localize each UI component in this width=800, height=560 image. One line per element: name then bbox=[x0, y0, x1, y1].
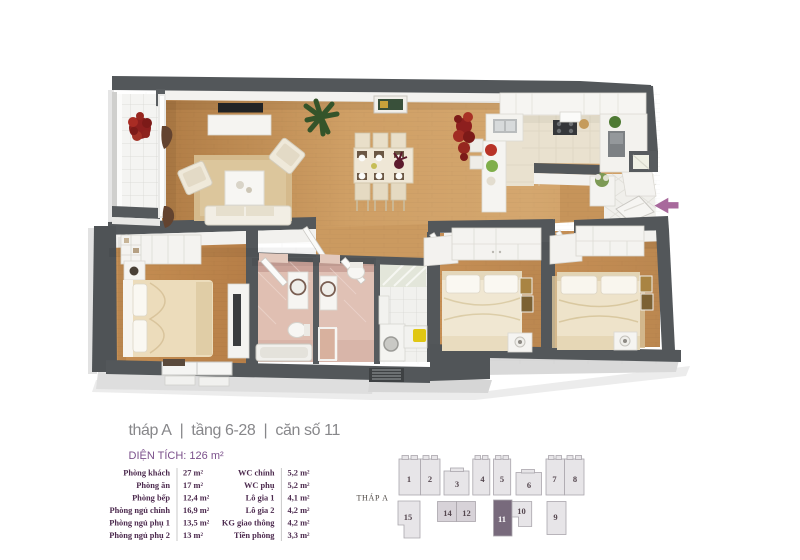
svg-text:4,2 m²: 4,2 m² bbox=[288, 506, 311, 515]
svg-text:9: 9 bbox=[553, 512, 557, 522]
svg-text:DIỆN TÍCH: 126 m²: DIỆN TÍCH: 126 m² bbox=[129, 449, 224, 462]
svg-text:Phòng khách: Phòng khách bbox=[123, 469, 170, 478]
svg-text:11: 11 bbox=[498, 514, 506, 524]
svg-text:THÁP A: THÁP A bbox=[356, 493, 388, 503]
svg-text:Phòng ăn: Phòng ăn bbox=[136, 481, 170, 490]
svg-text:KG giao thông: KG giao thông bbox=[222, 519, 275, 528]
svg-text:8: 8 bbox=[573, 474, 577, 484]
svg-text:WC phụ: WC phụ bbox=[244, 481, 275, 490]
svg-text:3: 3 bbox=[455, 479, 459, 489]
svg-text:5,2 m²: 5,2 m² bbox=[288, 469, 311, 478]
svg-text:4,1 m²: 4,1 m² bbox=[288, 494, 311, 503]
svg-text:Lô gia 2: Lô gia 2 bbox=[246, 506, 275, 515]
svg-text:tháp A | tầng 6-28 | căn s: tháp A | tầng 6-28 | căn số 11 bbox=[129, 422, 341, 439]
svg-text:10: 10 bbox=[517, 506, 526, 516]
svg-text:16,9 m²: 16,9 m² bbox=[183, 506, 210, 515]
svg-text:Phòng ngủ phụ 1: Phòng ngủ phụ 1 bbox=[109, 519, 170, 528]
svg-text:15: 15 bbox=[404, 512, 413, 522]
svg-text:13 m²: 13 m² bbox=[183, 531, 203, 540]
svg-text:27 m²: 27 m² bbox=[183, 469, 203, 478]
svg-text:WC chính: WC chính bbox=[238, 469, 275, 478]
svg-text:13,5 m²: 13,5 m² bbox=[183, 519, 210, 528]
svg-text:5: 5 bbox=[500, 474, 504, 484]
svg-text:1: 1 bbox=[407, 474, 411, 484]
svg-text:14: 14 bbox=[443, 508, 452, 518]
svg-text:Tiền phòng: Tiền phòng bbox=[234, 531, 275, 540]
svg-text:12,4 m²: 12,4 m² bbox=[183, 494, 210, 503]
svg-text:12: 12 bbox=[462, 508, 471, 518]
svg-text:Phòng bếp: Phòng bếp bbox=[132, 494, 170, 503]
svg-text:Phòng ngủ phụ 2: Phòng ngủ phụ 2 bbox=[109, 531, 170, 540]
svg-text:Lô gia 1: Lô gia 1 bbox=[246, 494, 275, 503]
svg-text:2: 2 bbox=[428, 474, 432, 484]
svg-text:4,2 m²: 4,2 m² bbox=[288, 519, 311, 528]
svg-text:6: 6 bbox=[527, 480, 531, 490]
svg-text:17 m²: 17 m² bbox=[183, 481, 203, 490]
svg-text:5,2 m²: 5,2 m² bbox=[288, 481, 311, 490]
svg-text:Phòng ngủ chính: Phòng ngủ chính bbox=[109, 506, 170, 515]
svg-text:3,3 m²: 3,3 m² bbox=[288, 531, 311, 540]
